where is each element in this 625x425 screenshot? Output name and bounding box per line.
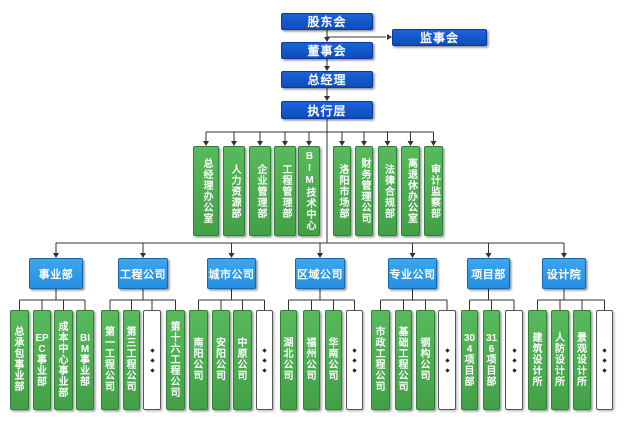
ellipsis-box [505,310,523,410]
department-box-label: 离退休办公室 [406,158,416,224]
ellipsis-box [438,310,456,410]
department-box-label: 企业管理部 [255,164,265,219]
node-board-of-directors-label: 董事会 [307,42,346,59]
division-box: 项目部 [467,258,510,289]
ellipsis-dot [150,368,154,372]
division-box-label: 项目部 [471,266,506,282]
node-shareholders-meeting: 股东会 [281,13,373,30]
node-general-manager-label: 总经理 [307,71,346,88]
division-box-label: 事业部 [39,266,74,282]
node-general-manager: 总经理 [281,71,373,88]
ellipsis-dot [352,358,356,362]
subsidiary-box-label: 福州公司 [304,338,319,382]
ellipsis-dot [512,358,516,362]
ellipsis-box [143,310,161,410]
ellipsis-dot [602,368,606,372]
ellipsis-dot [262,348,266,352]
subsidiary-box: 总承包事业部 [10,310,29,410]
subsidiary-box-label: 成本中心事业部 [55,322,72,399]
ellipsis-dot [445,368,449,372]
subsidiary-box-label: 基础工程公司 [396,327,411,393]
ellipsis-dot [352,368,356,372]
department-box: 财务管理公司 [355,146,373,236]
department-box: 人力资源部 [223,146,245,236]
subsidiary-box-label: 景观设计所 [574,333,590,388]
node-shareholders-meeting-label: 股东会 [307,13,346,30]
division-box-label: 城市公司 [209,266,255,282]
subsidiary-box: 人防设计所 [551,310,569,410]
ellipsis-box [346,310,363,410]
ellipsis-dot [602,348,606,352]
subsidiary-box: 第一工程公司 [101,310,119,410]
subsidiary-box-label: 中原公司 [234,338,251,382]
subsidiary-box: 南阳公司 [189,310,208,410]
subsidiary-box: BIM事业部 [76,310,94,410]
department-box: 离退休办公室 [401,146,420,236]
division-box-label: 设计院 [547,266,582,282]
subsidiary-box-label: 市政工程公司 [372,327,389,393]
subsidiary-box: 华南公司 [325,310,342,410]
node-executive-layer-label: 执行层 [307,102,346,119]
subsidiary-box: EPC事业部 [33,310,51,410]
department-box-label: 总经理办公室 [201,158,211,224]
ellipsis-dot [150,358,154,362]
subsidiary-box-label: 总承包事业部 [11,327,28,393]
subsidiary-box-label: 第十六工程公司 [167,322,184,399]
subsidiary-box: 第十六工程公司 [166,310,185,410]
subsidiary-box: 中原公司 [233,310,252,410]
subsidiary-box-label: 湖北公司 [281,338,296,382]
subsidiary-box-label: 南阳公司 [190,338,207,382]
ellipsis-dot [445,348,449,352]
ellipsis-dot [262,368,266,372]
division-box-label: 工程公司 [120,266,166,282]
department-box-label: 人力资源部 [229,164,239,219]
subsidiary-box-label: 华南公司 [326,338,341,382]
division-box: 专业公司 [388,258,437,289]
node-supervisory-board: 监事会 [392,29,487,46]
subsidiary-box-label: 安阳公司 [213,338,229,382]
node-executive-layer: 执行层 [281,101,373,119]
subsidiary-box-label: 钢构公司 [417,338,434,382]
division-box: 工程公司 [118,258,168,289]
ellipsis-dot [150,348,154,352]
department-box: 洛阳市场部 [333,146,351,236]
subsidiary-box: 基础工程公司 [395,310,412,410]
division-box-label: 专业公司 [390,266,436,282]
subsidiary-box: 第三工程公司 [123,310,140,410]
ellipsis-box [256,310,273,410]
ellipsis-box [596,310,613,410]
subsidiary-box: 316项目部 [483,310,500,410]
subsidiary-box-label: 第三工程公司 [124,327,139,393]
department-box-label: 财务管理公司 [359,158,369,224]
subsidiary-box-label: BIM事业部 [77,333,93,388]
department-box: 工程管理部 [274,146,296,236]
department-box-label: 审计监察部 [429,164,439,219]
subsidiary-box: 钢构公司 [416,310,435,410]
subsidiary-box: 景观设计所 [573,310,591,410]
division-box: 设计院 [542,258,586,289]
subsidiary-box: 成本中心事业部 [54,310,73,410]
subsidiary-box: 福州公司 [303,310,320,410]
department-box-label: BIM技术中心 [304,151,314,231]
division-box: 事业部 [29,258,83,289]
subsidiary-box: 湖北公司 [280,310,297,410]
subsidiary-box: 304项目部 [461,310,478,410]
division-box-label: 区域公司 [297,266,343,282]
ellipsis-dot [512,368,516,372]
org-chart-canvas: 股东会监事会董事会总经理执行层总经理办公室人力资源部企业管理部工程管理部BIM技… [0,0,625,425]
division-box: 城市公司 [207,258,256,289]
department-box-label: 洛阳市场部 [337,164,347,219]
subsidiary-box-label: 304项目部 [462,333,477,388]
subsidiary-box: 安阳公司 [212,310,230,410]
ellipsis-dot [512,348,516,352]
subsidiary-box-label: 316项目部 [484,333,499,388]
department-box: 审计监察部 [424,146,443,236]
ellipsis-dot [445,358,449,362]
department-box: BIM技术中心 [298,146,320,236]
division-box: 区域公司 [295,258,345,289]
node-supervisory-board-label: 监事会 [420,29,459,46]
subsidiary-box-label: 建筑设计所 [529,333,546,388]
department-box: 总经理办公室 [193,146,219,236]
ellipsis-dot [602,358,606,362]
subsidiary-box-label: 第一工程公司 [102,327,118,393]
node-board-of-directors: 董事会 [281,42,373,59]
subsidiary-box-label: 人防设计所 [552,333,568,388]
department-box-label: 工程管理部 [280,164,290,219]
department-box-label: 法律合规部 [383,164,393,219]
ellipsis-dot [262,358,266,362]
subsidiary-box-label: EPC事业部 [34,333,50,388]
department-box: 法律合规部 [378,146,397,236]
subsidiary-box: 市政工程公司 [371,310,390,410]
department-box: 企业管理部 [249,146,271,236]
ellipsis-dot [352,348,356,352]
subsidiary-box: 建筑设计所 [528,310,547,410]
